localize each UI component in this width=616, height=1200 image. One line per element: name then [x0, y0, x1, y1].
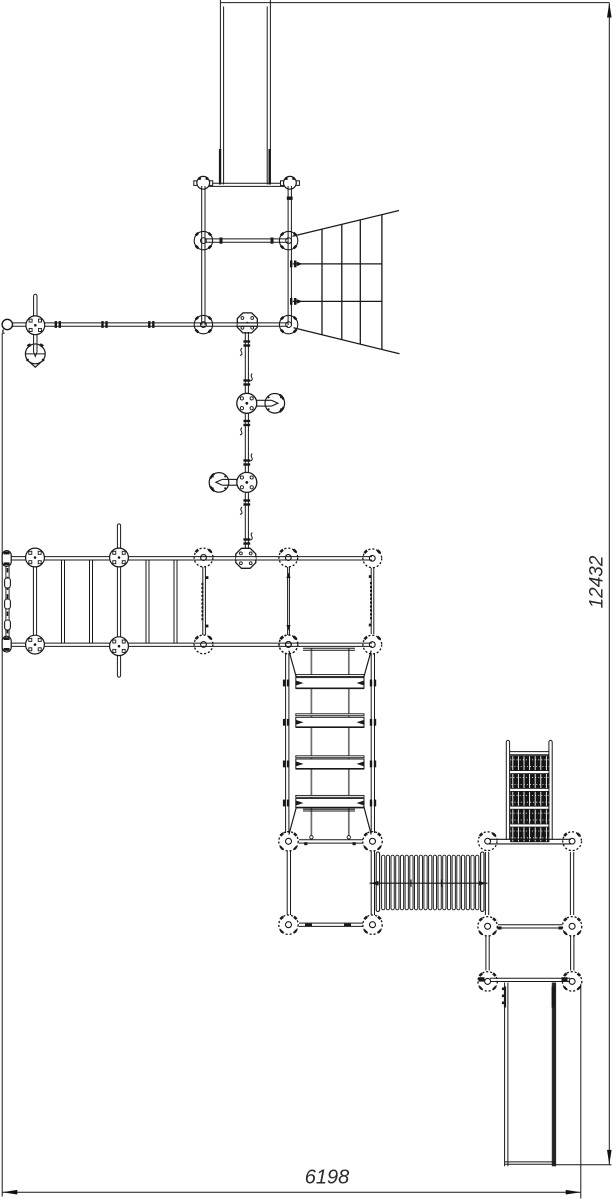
svg-text:12432: 12432 — [587, 555, 608, 608]
svg-text:6198: 6198 — [305, 1167, 350, 1189]
